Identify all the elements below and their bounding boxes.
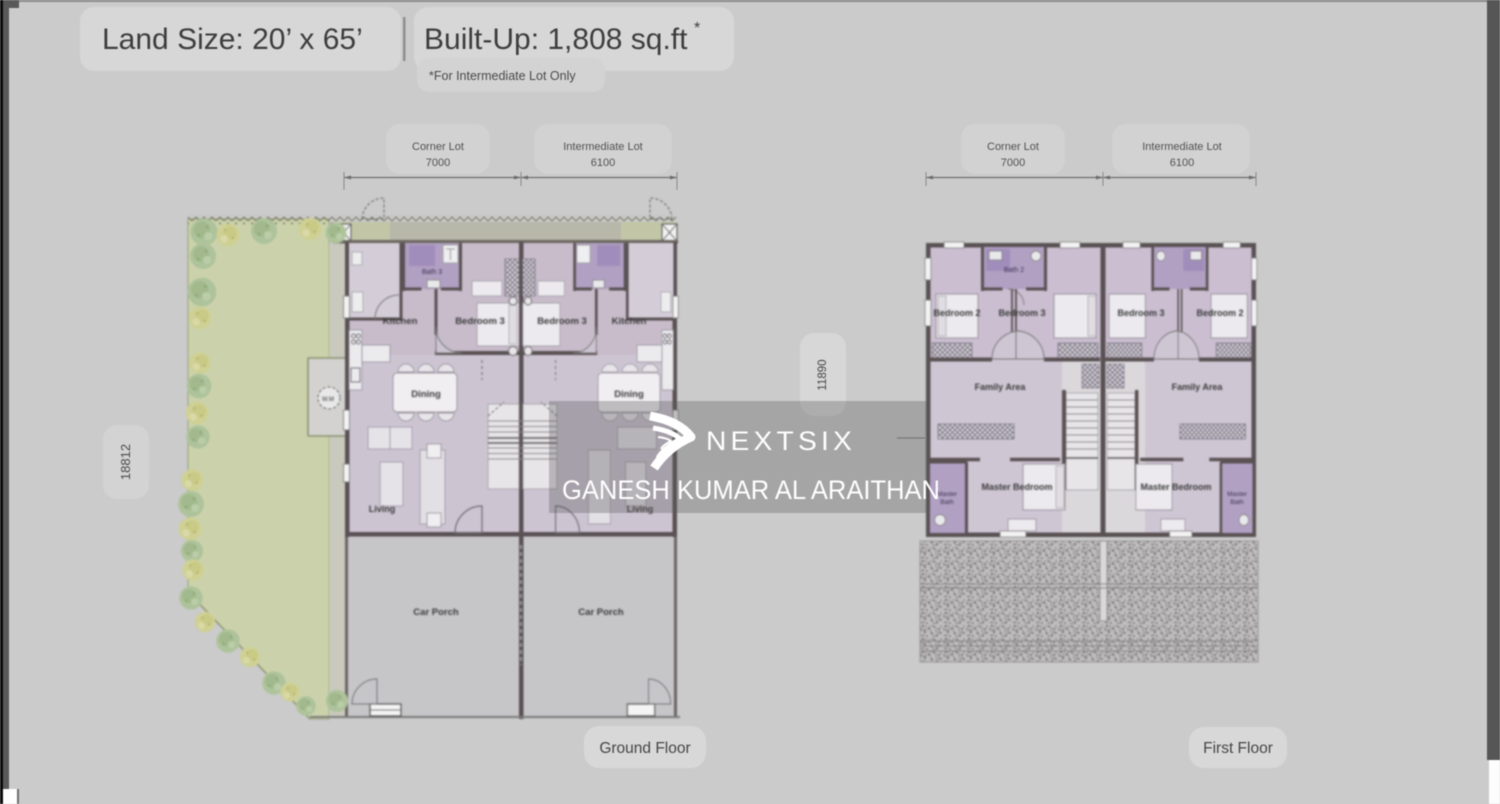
svg-text:Bedroom 3: Bedroom 3	[1117, 308, 1164, 318]
svg-text:Living: Living	[369, 504, 396, 514]
svg-text:Bedroom 3: Bedroom 3	[998, 308, 1045, 318]
svg-text:First Floor: First Floor	[1203, 740, 1273, 757]
svg-text:Bedroom 3: Bedroom 3	[537, 316, 587, 327]
svg-text:Bedroom 2: Bedroom 2	[1196, 308, 1243, 318]
svg-text:7000: 7000	[1001, 157, 1025, 169]
svg-text:*For Intermediate Lot Only: *For Intermediate Lot Only	[429, 69, 576, 83]
svg-text:Bath 3: Bath 3	[422, 269, 442, 276]
svg-text:Master Bedroom: Master Bedroom	[981, 482, 1052, 492]
svg-text:Bath: Bath	[1230, 499, 1244, 506]
svg-text:Kitchen: Kitchen	[612, 316, 647, 327]
svg-text:Intermediate Lot: Intermediate Lot	[563, 141, 643, 153]
svg-text:Land Size: 20’ x 65’: Land Size: 20’ x 65’	[102, 23, 363, 56]
svg-text:NEXTSIX: NEXTSIX	[706, 426, 856, 456]
svg-text:Ground Floor: Ground Floor	[599, 740, 690, 757]
svg-text:18812: 18812	[118, 444, 133, 480]
svg-text:Car Porch: Car Porch	[413, 607, 459, 618]
svg-text:Master: Master	[937, 491, 958, 498]
svg-text:Bath 2: Bath 2	[1004, 267, 1024, 274]
svg-text:Corner Lot: Corner Lot	[987, 141, 1039, 153]
svg-text:Bath: Bath	[940, 499, 954, 506]
svg-text:Master Bedroom: Master Bedroom	[1140, 482, 1211, 492]
svg-text:GANESH KUMAR AL ARAITHAN: GANESH KUMAR AL ARAITHAN	[562, 475, 940, 505]
svg-text:7000: 7000	[426, 157, 450, 169]
svg-text:Family Area: Family Area	[975, 382, 1027, 392]
svg-text:Corner Lot: Corner Lot	[412, 141, 464, 153]
svg-text:Bedroom 3: Bedroom 3	[455, 316, 505, 327]
svg-text:Intermediate Lot: Intermediate Lot	[1142, 141, 1222, 153]
svg-text:Bedroom 2: Bedroom 2	[933, 308, 980, 318]
svg-text:Dining: Dining	[411, 389, 441, 400]
svg-text:Built-Up: 1,808 sq.ft: Built-Up: 1,808 sq.ft	[424, 23, 688, 56]
svg-text:Dining: Dining	[614, 389, 644, 400]
svg-text:Kitchen: Kitchen	[383, 316, 418, 327]
svg-text:*: *	[694, 20, 700, 37]
svg-text:Family Area: Family Area	[1172, 382, 1224, 392]
svg-text:Car Porch: Car Porch	[578, 607, 624, 618]
svg-text:Master: Master	[1227, 491, 1248, 498]
svg-text:6100: 6100	[1170, 157, 1194, 169]
svg-text:11890: 11890	[817, 359, 829, 390]
svg-text:W.M: W.M	[322, 397, 334, 403]
svg-text:6100: 6100	[591, 157, 615, 169]
